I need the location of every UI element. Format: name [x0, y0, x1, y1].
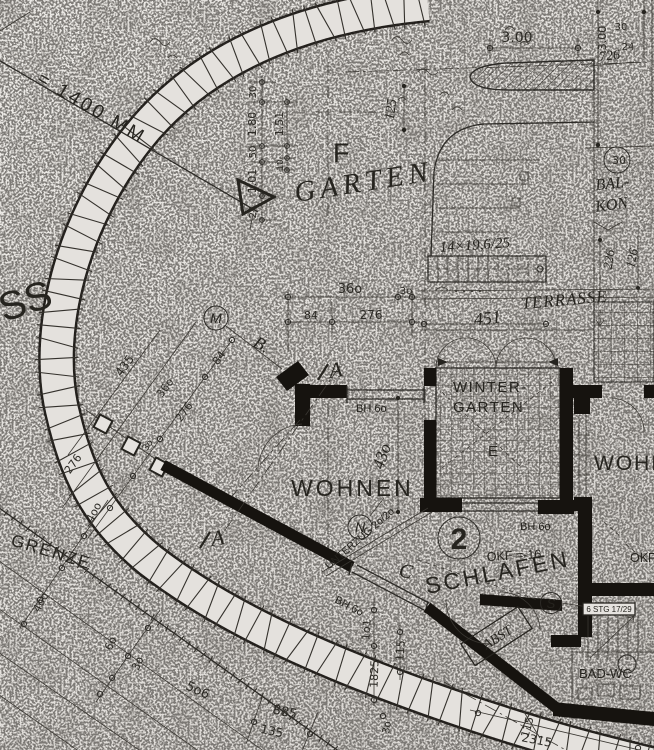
marker-m: M — [210, 310, 222, 326]
dim-lc-30: 30 — [248, 86, 259, 99]
marker-s: S — [547, 596, 556, 611]
dim-30-bm: 3o — [381, 720, 394, 734]
label-wohnen: WOHNEN — [291, 475, 414, 501]
dim-tr-30: 30 — [615, 22, 628, 33]
dim-101: 1o1 — [359, 619, 373, 641]
dim-garten-125: 125 — [383, 98, 401, 121]
dim-1825: 1825 — [368, 660, 382, 688]
dim-tr-24: 24 — [622, 42, 635, 53]
label-bh60-winter: BH 6o — [520, 521, 551, 533]
label-okf-right: OKF — [630, 551, 654, 565]
marker-n: N — [355, 519, 366, 535]
marker-minus30: -30 — [608, 154, 626, 167]
dim-tr-300: 3.00 — [596, 26, 609, 51]
dim-lc-50: 50 — [248, 146, 259, 159]
label-balkon-1: BAL- — [595, 174, 630, 194]
dim-mid-84: 84 — [304, 309, 318, 322]
dim-mid-360: 36o — [338, 282, 363, 297]
label-wintergarten-e: E — [488, 443, 498, 460]
dim-bal-226: 226 — [600, 248, 618, 270]
label-bh60-window: BH 6o — [356, 403, 387, 415]
floor-plan-svg: GRENZE 4oo 4oo 6o 3o 5o6 885 135 = 1400 … — [0, 0, 654, 750]
label-wintergarten-1: WINTER- — [453, 379, 528, 396]
dim-lc-180: 1.80 — [246, 112, 259, 137]
dim-lc-151: 1.51 — [273, 112, 286, 137]
scanned-floor-plan: GRENZE 4oo 4oo 6o 3o 5o6 885 135 = 1400 … — [0, 0, 654, 750]
terrace-tiles — [594, 302, 654, 382]
label-wintergarten-2: GARTEN — [453, 399, 524, 416]
dim-115-m: 115 — [393, 640, 407, 662]
label-stair-right: 6 STG 17/29 — [586, 605, 632, 614]
dim-lc-10: 10 — [276, 159, 286, 171]
dim-mid-30: 3o — [400, 286, 412, 297]
label-bad-wc: BAD-WC — [579, 666, 632, 681]
label-wohn-right: WOHN — [594, 452, 654, 475]
dim-451: 451 — [473, 307, 502, 330]
label-axis-f: F — [333, 138, 350, 168]
dim-mid-276: 276 — [360, 308, 383, 322]
marker-unit: 2 — [451, 523, 468, 556]
dim-tr-726: 726 — [598, 48, 621, 65]
